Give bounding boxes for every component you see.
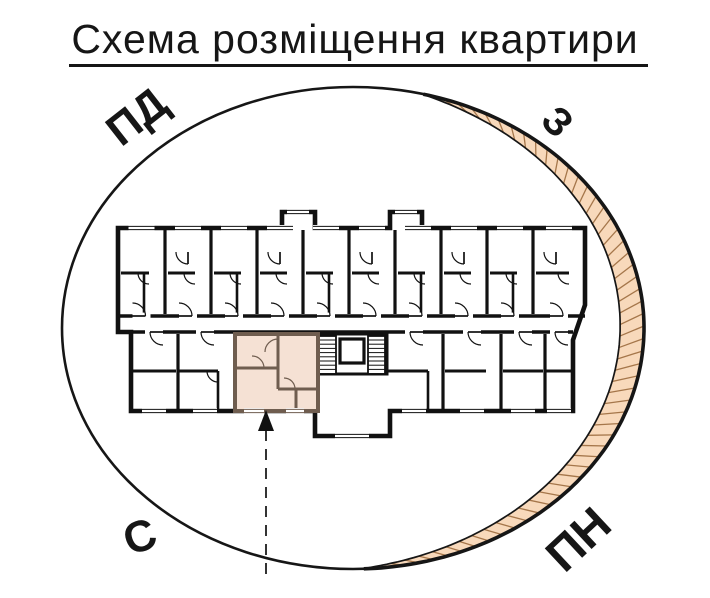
apartment-location-scheme: Схема розміщення квартири ПД З С ПН	[0, 0, 710, 598]
floor-plan	[118, 209, 585, 439]
scheme-canvas: ПД З С ПН	[0, 0, 710, 598]
highlighted-apartment[interactable]	[235, 334, 318, 414]
compass-label-z: З	[532, 98, 581, 147]
compass-label-pn: ПН	[535, 497, 621, 582]
apartment-pointer-arrow	[258, 410, 274, 575]
compass-label-s: С	[117, 509, 164, 566]
